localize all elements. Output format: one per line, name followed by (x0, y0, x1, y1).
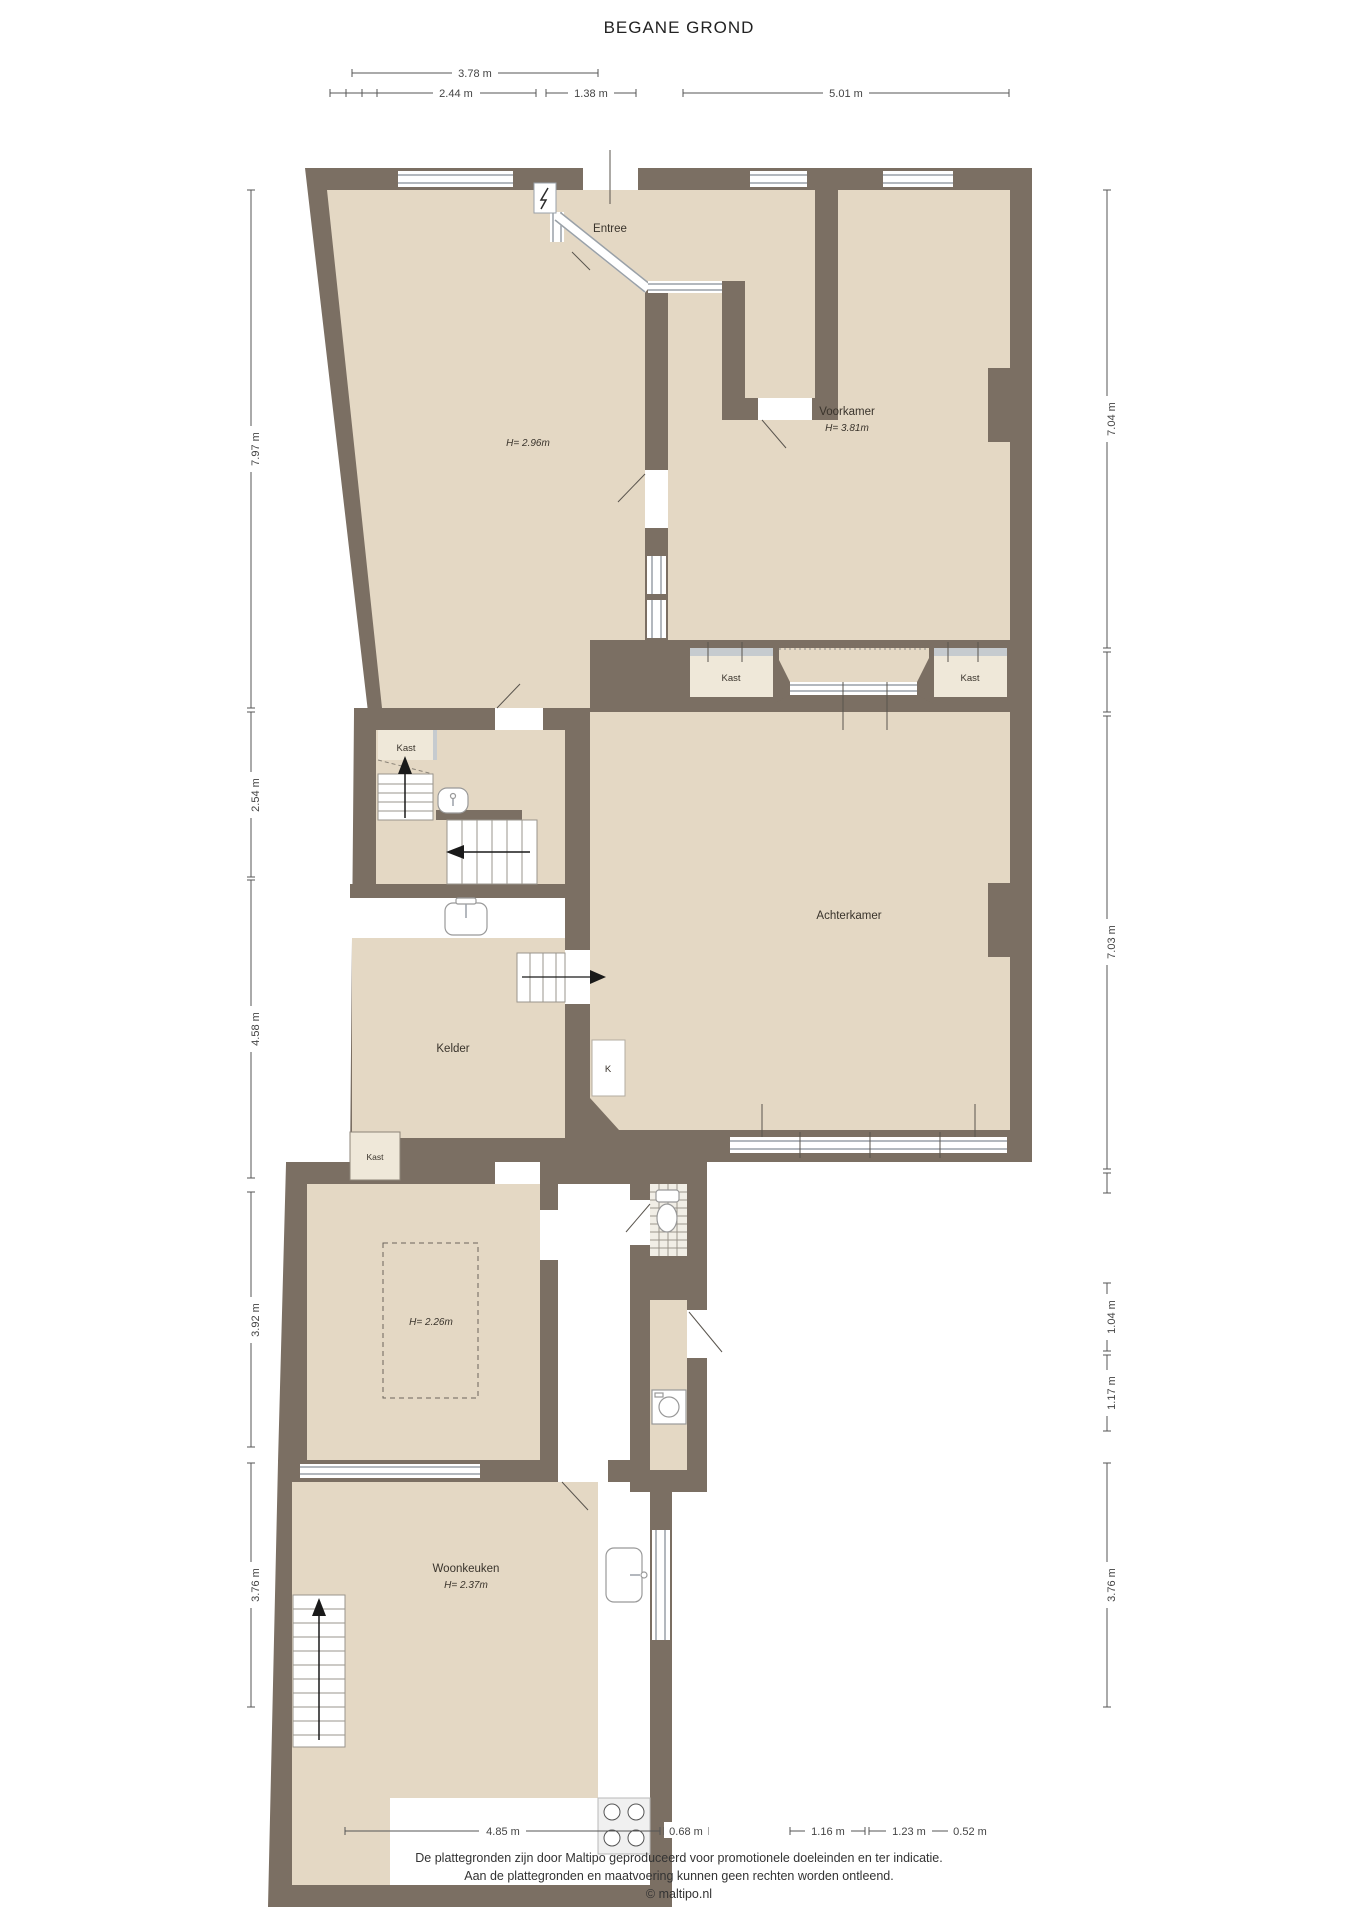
dim-bottom-068: 0.68 m (669, 1826, 703, 1838)
cooktop (598, 1798, 650, 1854)
label-room1-height: H= 2.96m (506, 438, 550, 449)
dim-right-104: 1.04 m (1106, 1300, 1118, 1334)
label-kast-ensuite-right: Kast (960, 673, 979, 684)
label-voorkamer-height: H= 3.81m (825, 423, 869, 434)
label-k-closet: K (605, 1064, 612, 1075)
staircase-winder (446, 820, 537, 884)
toilet (656, 1190, 679, 1232)
dim-bottom-116: 1.16 m (811, 1826, 845, 1838)
pantry-sink (445, 898, 487, 935)
label-kast-ensuite-left: Kast (721, 673, 740, 684)
label-woonkeuken: Woonkeuken (433, 1563, 500, 1575)
dim-bottom-052: 0.52 m (953, 1826, 987, 1838)
window-top-1 (398, 171, 513, 187)
label-achterkamer: Achterkamer (816, 910, 881, 922)
dim-top-138: 1.38 m (574, 88, 608, 100)
dimensions-top: 3.78 m 2.44 m 1.38 m 5.01 m (330, 68, 1009, 100)
achterkamer-floor (590, 712, 1010, 1130)
dim-left-376: 3.76 m (250, 1568, 262, 1602)
front-rooms-floor (327, 190, 1010, 708)
dimensions-left: 7.97 m 2.54 m 4.58 m 3.92 m 3.76 m (247, 190, 262, 1707)
dim-left-458: 4.58 m (250, 1012, 262, 1046)
dim-left-254: 2.54 m (250, 778, 262, 812)
middle-room-door (540, 1210, 558, 1260)
dimensions-right: 7.04 m 7.03 m 1.04 m 1.17 m 3.76 m (1103, 190, 1118, 1707)
washing-machine (652, 1390, 686, 1424)
window-top-3 (883, 171, 953, 187)
kitchen-sink (606, 1548, 647, 1602)
floorplan-canvas: BEGANE GROND (0, 0, 1358, 1920)
washroom-ext-door (687, 1310, 722, 1358)
dim-top-378: 3.78 m (458, 68, 492, 80)
dim-right-703: 7.03 m (1106, 925, 1118, 959)
electric-meter (534, 183, 556, 213)
floorplan-page: BEGANE GROND (0, 0, 1358, 1920)
kitchen-counter-right (598, 1482, 650, 1798)
page-title: BEGANE GROND (604, 18, 755, 37)
hall-sink (438, 788, 468, 813)
dim-top-244: 2.44 m (439, 88, 473, 100)
label-kast-hall: Kast (396, 743, 415, 754)
woonkeuken-right-window (652, 1530, 670, 1640)
staircase-woonkeuken (293, 1595, 345, 1747)
footer-line-3: © maltipo.nl (646, 1887, 712, 1901)
dim-right-117: 1.17 m (1106, 1376, 1118, 1410)
dim-left-797: 7.97 m (250, 432, 262, 466)
footer-line-2: Aan de plattegronden en maatvoering kunn… (464, 1869, 894, 1883)
label-woonkeuken-height: H= 2.37m (444, 1580, 488, 1591)
label-middle-room-height: H= 2.26m (409, 1317, 453, 1328)
dim-bottom-485: 4.85 m (486, 1826, 520, 1838)
corridor-floor (558, 1184, 630, 1460)
dim-bottom-123: 1.23 m (892, 1826, 926, 1838)
label-kelder: Kelder (436, 1043, 469, 1055)
label-kast-small: Kast (366, 1152, 384, 1162)
middle-room-north-door (495, 1162, 540, 1184)
window-top-2 (750, 171, 807, 187)
footer-line-1: De plattegronden zijn door Maltipo gepro… (415, 1851, 942, 1865)
dim-left-392: 3.92 m (250, 1303, 262, 1337)
dim-top-501: 5.01 m (829, 88, 863, 100)
dim-right-704: 7.04 m (1106, 402, 1118, 436)
label-entree: Entree (593, 223, 627, 235)
label-voorkamer: Voorkamer (819, 406, 875, 418)
dim-right-376: 3.76 m (1106, 1568, 1118, 1602)
